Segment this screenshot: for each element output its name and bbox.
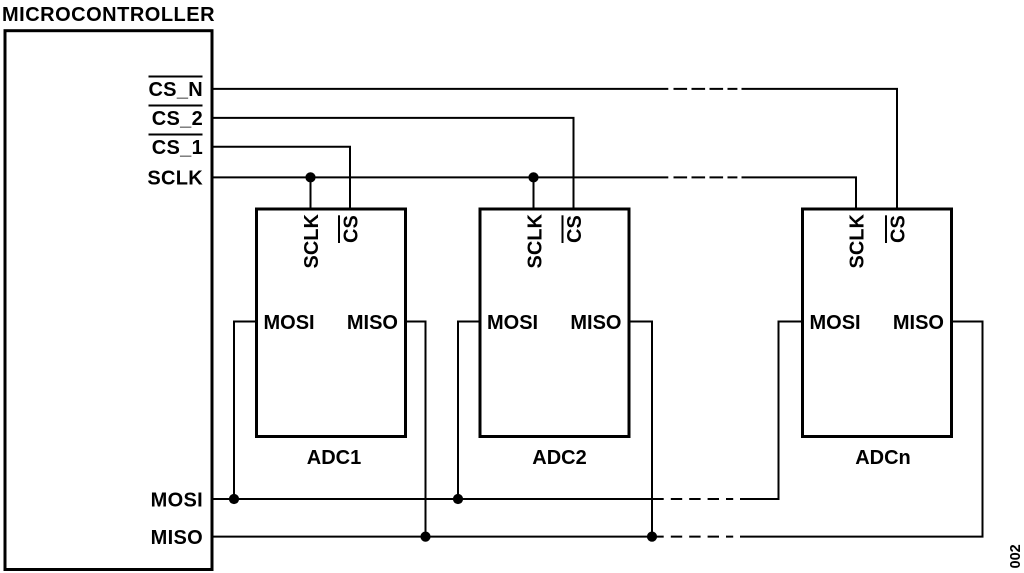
svg-text:SCLK: SCLK	[846, 214, 868, 269]
svg-text:MOSI: MOSI	[487, 312, 538, 334]
svg-text:MOSI: MOSI	[264, 312, 315, 334]
svg-text:MOSI: MOSI	[810, 312, 861, 334]
svg-text:SCLK: SCLK	[147, 168, 203, 190]
svg-text:MISO: MISO	[570, 312, 621, 334]
svg-text:SCLK: SCLK	[301, 214, 323, 269]
svg-text:MISO: MISO	[151, 527, 203, 549]
svg-text:CS_2: CS_2	[152, 108, 203, 130]
svg-text:ADCn: ADCn	[855, 447, 911, 469]
svg-text:CS: CS	[887, 215, 909, 243]
svg-text:SCLK: SCLK	[524, 214, 546, 269]
svg-text:ADC1: ADC1	[307, 447, 361, 469]
svg-text:MOSI: MOSI	[151, 489, 203, 511]
svg-text:CS_1: CS_1	[152, 137, 203, 159]
svg-text:002: 002	[1008, 544, 1024, 568]
svg-text:CS: CS	[564, 215, 586, 243]
svg-text:MICROCONTROLLER: MICROCONTROLLER	[2, 4, 215, 26]
svg-text:MISO: MISO	[893, 312, 944, 334]
svg-text:CS: CS	[340, 215, 362, 243]
svg-text:MISO: MISO	[347, 312, 398, 334]
svg-text:ADC2: ADC2	[532, 447, 586, 469]
svg-text:CS_N: CS_N	[148, 79, 203, 101]
